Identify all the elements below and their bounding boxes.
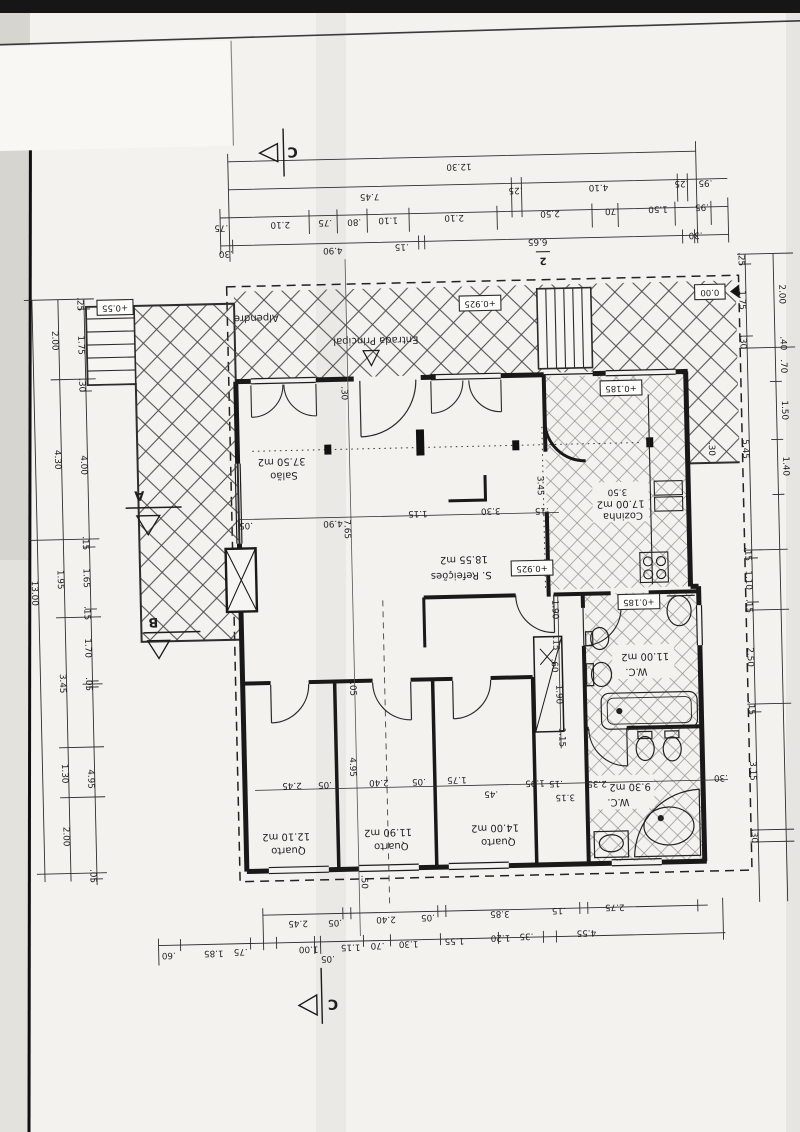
level-badge: +0.185 [623,596,655,607]
dim-label: .05 [239,520,253,530]
dim-label: 3.15 [555,792,575,802]
dim-label: 1.75 [736,290,746,310]
dim-label: 1.65 [80,568,90,588]
dim-label: 1.95 [525,777,545,787]
dim-label: 7.45 [360,191,380,201]
dim-label: 1.55 [445,935,465,945]
entrance-steps [537,288,593,369]
overlapping-sheet [0,41,233,152]
dim-label: 3.45 [57,674,67,694]
dim-label: 3.30 [480,505,500,515]
dim-label: 1.75 [447,774,467,784]
room-area: 17.00 m2 [597,497,645,509]
section-letter: B [148,614,158,629]
dim-label: 2.00 [776,284,786,304]
dim-label: .05 [328,917,342,927]
dim-label: 1.50 [648,203,668,213]
dim-label: .30 [713,772,728,782]
dim-label: 1.15 [556,727,566,747]
dim-label: 2.40 [376,914,396,924]
section-letter: C [328,996,339,1012]
dim-label: 4.55 [576,927,596,937]
dim-label: .05 [87,869,97,883]
dim-label: .50 [359,875,369,890]
dim-label: 12.30 [446,161,472,172]
dim-label: 2.40 [369,777,389,787]
scanned-floor-plan-sheet: 12.307.45.254.10.25.95.752.10.75.801.102… [0,0,800,1132]
dim-label: 1.10 [743,570,753,590]
dim-label: .40 [777,336,787,351]
dim-label: 1.70 [82,638,92,658]
dim-label: .05 [318,779,332,789]
scanner-edge-top [0,0,800,13]
floor-plan-drawing: 12.307.45.254.10.25.95.752.10.75.801.102… [0,0,800,1132]
dim-label: .30 [688,230,703,240]
level-badge: +0.185 [605,383,637,394]
dim-label: .80 [347,216,362,226]
dim-label: .15 [80,536,90,550]
dim-label: .95 [695,201,709,211]
dim-label: .30 [706,442,716,457]
dim-label: 4.00 [78,455,88,475]
dim-label: .35 [519,931,533,941]
dim-label: .05 [347,682,357,696]
dim-label: 1.10 [378,214,398,224]
wall-stub [416,429,425,455]
dim-label: .70 [604,205,619,215]
dim-label: .30 [737,335,747,350]
dim-label: .15 [743,599,753,613]
dim-label: 3.15 [747,761,757,781]
fireplace [226,548,257,612]
dim-label: 1.85 [204,948,224,958]
dim-label: 2.45 [282,780,302,790]
dim-label: 1.15 [341,941,361,951]
level-badge: +0.925 [516,563,548,574]
dim-label: 1.40 [780,456,790,476]
dim-label: 4.95 [347,757,357,777]
section-letter: 2 [539,255,546,266]
dim-label: 1.90 [549,600,559,620]
dim-label: .30 [76,378,86,393]
dim-label: 2.00 [49,331,59,351]
kitchen-floor [544,373,691,589]
dim-label: 4.10 [588,182,608,192]
dim-label: .45 [484,788,498,798]
room-area: 11.00 m2 [621,650,669,662]
dim-label: 1.00 [298,943,318,953]
room-area: 11.90 m2 [364,826,412,838]
section-letter: A [134,487,144,502]
dim-label: .70 [370,940,385,950]
room-area: 9.30 m2 [609,780,651,792]
room-name: Cozinha [603,509,643,521]
dim-label: 2.75 [605,901,625,911]
room-name: Quarto [271,844,306,856]
dim-label: .30 [218,248,233,258]
dim-label: .15 [549,778,563,788]
dim-label: .15 [746,701,756,715]
dim-label: .30 [338,386,348,401]
dim-label: 4.90 [323,518,343,528]
dim-label: .25 [508,185,522,195]
dim-label: 3.50 [607,486,627,496]
room-area: 14.00 m2 [471,821,519,833]
dim-label: .05 [412,776,426,786]
room-area: 18.55 m2 [440,553,488,565]
dim-label: .25 [735,252,745,266]
dim-label: .25 [74,297,84,311]
dim-label: 4.90 [323,245,343,255]
dim-label: 1.50 [779,400,789,420]
dim-label: 4.95 [85,769,95,789]
dim-label: 7.65 [341,519,351,539]
dim-label: .15 [742,547,752,561]
room-name: Quarto [374,840,409,852]
dim-label: 2.45 [288,918,308,928]
dim-label: .15 [535,505,549,515]
porch-steps [86,306,136,385]
dim-label: 1.75 [75,335,85,355]
dim-label: .60 [549,658,559,673]
dim-label: .25 [674,178,688,188]
dim-label: 3.85 [490,908,510,918]
section-letter: C [287,143,298,159]
room-name: W.C. [607,796,629,807]
dim-label: 2.10 [270,219,290,229]
dim-label: 2.50 [540,208,560,218]
pillar [324,445,331,455]
dim-label: .05 [83,677,93,691]
dim-label: 2.10 [444,212,464,222]
dim-label: .05 [321,953,335,963]
room-name: Salão [270,469,298,481]
dim-label: 1.30 [59,764,69,784]
dim-label: 5.45 [740,439,750,459]
dim-label: 13.00 [29,581,40,607]
dim-label: .15 [395,241,409,251]
dim-label: .60 [161,950,176,960]
paper-edge-line [29,95,31,1132]
dim-label: .95 [698,177,712,187]
room-name: W.C. [625,665,647,676]
room-name: Quarto [481,835,516,847]
dim-label: 1.90 [553,685,563,705]
room-area: 37.50 m2 [258,455,306,467]
room-area: 12.10 m2 [262,830,310,842]
dim-label: .15 [81,606,91,620]
dim-label: .75 [318,217,332,227]
dim-label: 6.65 [528,236,548,246]
note-label: Alpendre [234,312,279,324]
dim-label: .30 [749,829,759,844]
dim-label: .15 [552,905,566,915]
level-badge: +0.55 [102,302,128,313]
dim-label: 1.95 [55,570,65,590]
dim-label: 3.45 [534,476,544,496]
dim-label: .15 [550,636,560,650]
room-name: S. Refeições [431,569,492,581]
dim-label: 1.30 [398,938,418,948]
dim-label: 2.35 [587,778,607,788]
dim-label: .70 [778,359,788,374]
level-badge: 0.00 [700,287,719,297]
dim-label: 4.30 [52,450,62,470]
dim-label: 2.00 [60,827,70,847]
dim-label: .75 [234,946,248,956]
level-badge: +0.925 [464,298,496,309]
dim-label: .05 [421,912,435,922]
dim-label: 1.15 [408,508,428,518]
note-label: Entrada Principal [333,334,418,347]
pillar [512,440,519,450]
dim-label: .75 [214,222,228,232]
dim-label: 2.50 [744,647,754,667]
dim-label: 1.20 [490,932,510,942]
